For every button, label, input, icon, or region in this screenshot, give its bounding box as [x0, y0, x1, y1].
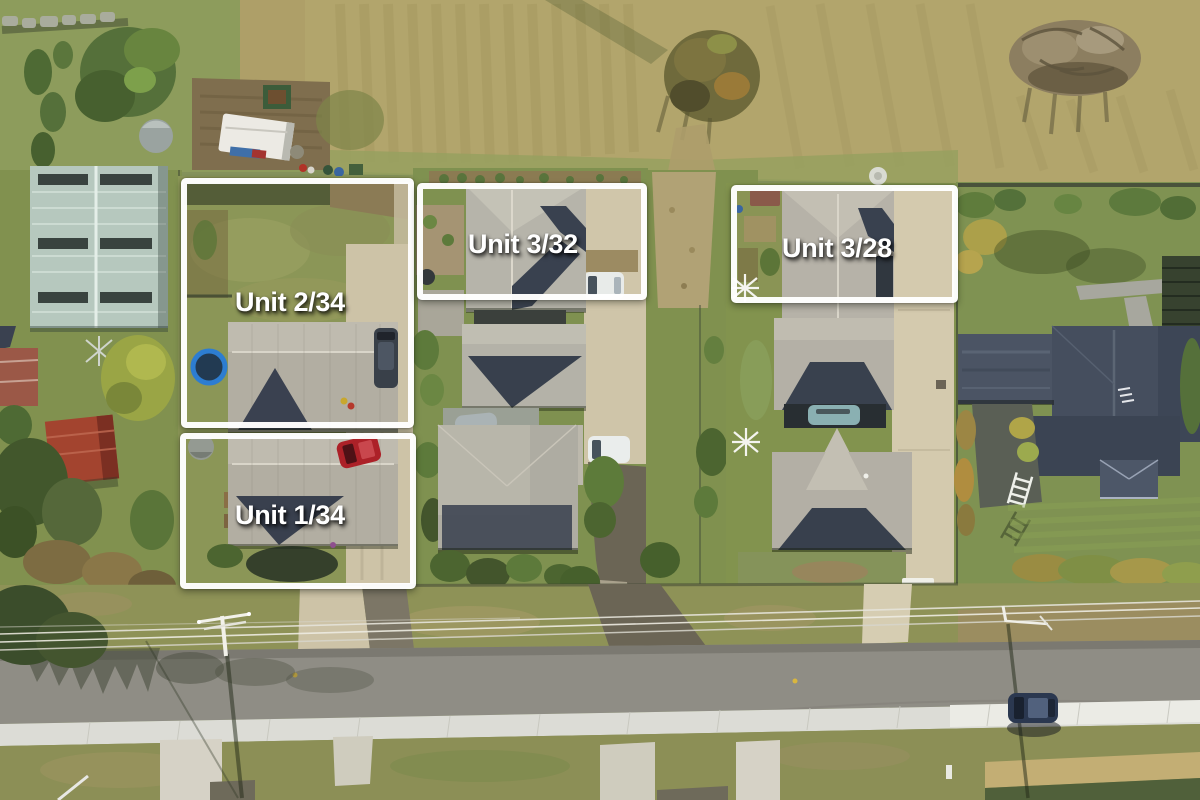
aerial-property-photo: Unit 2/34 Unit 1/34 Unit 3/32 Unit 3/28 — [0, 0, 1200, 800]
unit-label-3-32: Unit 3/32 — [468, 229, 578, 260]
lot-right — [954, 182, 1200, 602]
lot32-lower-house — [438, 425, 583, 554]
unit-label-1-34: Unit 1/34 — [235, 500, 345, 531]
white-bird — [864, 474, 869, 479]
teal-car — [808, 405, 860, 425]
left-column — [0, 166, 182, 610]
teal-shed — [30, 166, 168, 332]
unit-label-3-28: Unit 3/28 — [782, 233, 892, 264]
road-reflector — [793, 679, 798, 684]
lot28-middle-house — [774, 318, 894, 428]
lot32-middle-house — [462, 324, 586, 411]
unit-label-2-34: Unit 2/34 — [235, 287, 345, 318]
road-car-navy — [1007, 693, 1061, 737]
aerial-photo-canvas — [0, 0, 1200, 800]
